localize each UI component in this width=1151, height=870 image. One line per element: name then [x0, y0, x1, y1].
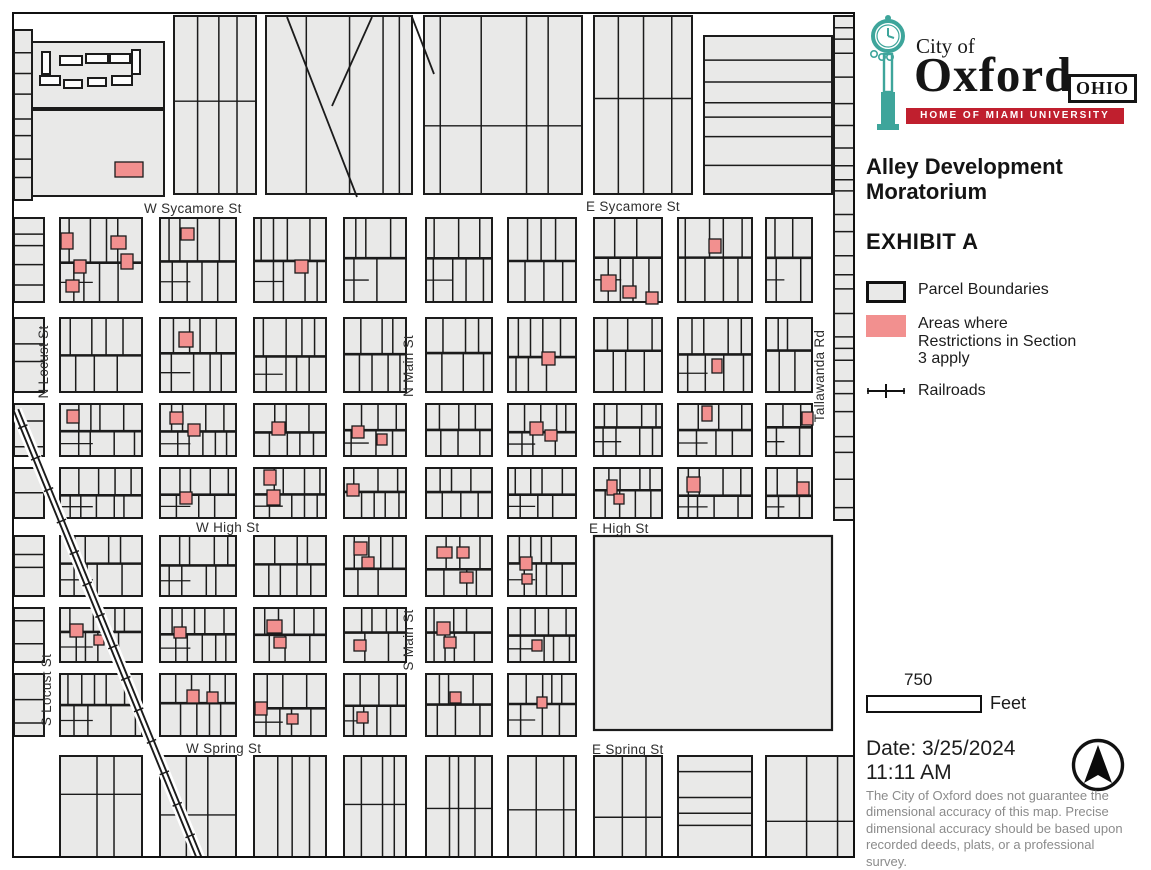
page-title: Alley Development Moratorium	[866, 154, 1116, 205]
map-panel: W Sycamore StE Sycamore StW High StE Hig…	[12, 12, 855, 858]
large-open-parcel	[594, 536, 832, 730]
scale-bar	[866, 695, 982, 713]
scale-unit: Feet	[990, 693, 1026, 714]
legend-label-restricted: Areas where Restrictions in Section 3 ap…	[918, 315, 1083, 369]
clock-tower-icon	[868, 14, 910, 132]
street-label: W Spring St	[186, 741, 261, 756]
scale-bar-group: 750 Feet	[866, 670, 1142, 714]
street-label: N Main St	[401, 335, 416, 397]
logo-tagline-banner: HOME OF MIAMI UNIVERSITY	[906, 108, 1124, 124]
logo-state-badge: OHIO	[1068, 74, 1137, 103]
scale-value: 750	[904, 670, 1142, 690]
street-label: E Sycamore St	[586, 199, 680, 214]
street-label: S Main St	[401, 609, 416, 670]
legend: Parcel Boundaries Areas where Restrictio…	[866, 281, 1142, 403]
city-logo: City of Oxford OHIO HOME OF MIAMI UNIVER…	[866, 12, 1142, 134]
legend-item-parcel: Parcel Boundaries	[866, 281, 1142, 303]
legend-label-railroads: Railroads	[918, 382, 986, 400]
north-arrow-icon	[1070, 737, 1126, 793]
railroad-swatch-icon	[866, 380, 906, 402]
legend-item-restricted: Areas where Restrictions in Section 3 ap…	[866, 315, 1142, 369]
street-label: W Sycamore St	[144, 201, 242, 216]
logo-oxford: Oxford	[914, 46, 1072, 103]
restricted-swatch	[866, 315, 906, 337]
street-label: W High St	[196, 520, 259, 535]
street-label: E Spring St	[592, 742, 664, 757]
parcel-blocks	[14, 16, 853, 856]
exhibit-label: EXHIBIT A	[866, 229, 1142, 255]
parcel-swatch	[866, 281, 906, 303]
street-label: N Locust St	[36, 325, 51, 398]
street-label: Tallawanda Rd	[812, 330, 827, 422]
street-label: E High St	[589, 521, 649, 536]
legend-item-railroads: Railroads	[866, 380, 1142, 402]
exhibit-page: W Sycamore StE Sycamore StW High StE Hig…	[0, 0, 1151, 870]
parcel-map: W Sycamore StE Sycamore StW High StE Hig…	[14, 14, 853, 856]
street-label: S Locust St	[39, 654, 54, 726]
sidebar: City of Oxford OHIO HOME OF MIAMI UNIVER…	[866, 12, 1142, 858]
disclaimer-text: The City of Oxford does not guarantee th…	[866, 788, 1138, 870]
legend-label-parcel: Parcel Boundaries	[918, 281, 1049, 299]
